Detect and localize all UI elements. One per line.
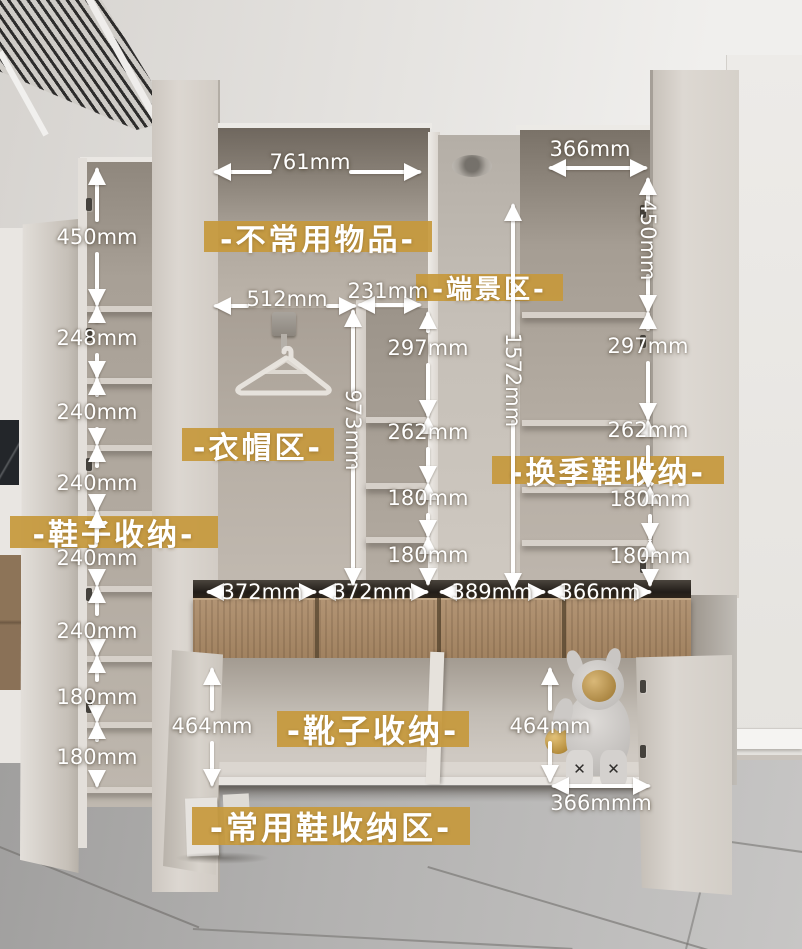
zone-label-boot-storage: -靴子收纳-: [277, 711, 469, 747]
baseboard: [726, 728, 802, 749]
dimension-arrow-231mm: 231mm: [358, 303, 421, 307]
dimension-text: 240mm: [57, 546, 138, 570]
marble-object: [0, 420, 19, 485]
dimension-arrow-389mm: 389mm: [440, 590, 545, 594]
arrowhead-icon: [88, 655, 106, 673]
arrowhead-icon: [88, 305, 106, 323]
wood-cabinet-left: [0, 555, 21, 690]
zone-label-infrequent-items: -不常用物品-: [204, 221, 432, 252]
dimension-text: 240mm: [57, 471, 138, 495]
door-hinge: [86, 198, 92, 211]
dimension-arrow-180mm: 180mm: [426, 483, 430, 537]
arrowhead-icon: [630, 159, 648, 177]
dimension-arrow-973mm: 973mm: [351, 310, 355, 585]
dimension-arrow-297mm: 297mm: [646, 312, 650, 420]
dimension-arrow-180mm: 180mm: [95, 722, 99, 787]
dimension-text: 464mm: [510, 714, 591, 738]
arrowhead-icon: [88, 510, 106, 528]
arrowhead-icon: [504, 573, 522, 591]
arrowhead-icon: [88, 770, 106, 788]
toy-leg: ✕: [600, 750, 627, 788]
arrowhead-icon: [504, 203, 522, 221]
drawer-gap: [437, 598, 441, 659]
toy-foot-mark: ✕: [607, 760, 620, 778]
shelf: [522, 312, 648, 318]
dimension-text: 240mm: [57, 619, 138, 643]
arrowhead-icon: [641, 569, 659, 587]
zone-label-daily-shoe-area: -常用鞋收纳区-: [192, 807, 470, 845]
dimension-arrow-180mm: 180mm: [95, 656, 99, 722]
toy-foot-mark: ✕: [573, 760, 586, 778]
arrowhead-icon: [344, 309, 362, 327]
dimension-arrow-180mm: 180mm: [648, 540, 652, 586]
dimension-text: 262mm: [608, 418, 689, 442]
arrowhead-icon: [548, 159, 566, 177]
arrowhead-icon: [88, 444, 106, 462]
dimension-arrow-297mm: 297mm: [426, 312, 430, 417]
dimension-arrow-240mm: 240mm: [95, 378, 99, 445]
dimension-text: 366mm: [550, 137, 631, 161]
arrowhead-icon: [541, 765, 559, 783]
zone-label-end-view-area: -端景区-: [416, 274, 563, 301]
hanger-icon: [228, 346, 338, 406]
dimension-text: 1572mm: [501, 333, 525, 427]
dimension-text: 180mm: [57, 685, 138, 709]
rail-mount: [272, 312, 296, 336]
dimension-arrow-512mm: 512mm: [214, 304, 356, 308]
dimension-text: 180mm: [610, 544, 691, 568]
dimension-arrow-180mm: 180mm: [648, 487, 652, 540]
annotated-wardrobe-photo: ✕ ✕ -不常用物品--端景区--衣帽区--换季鞋收纳--鞋子收纳--靴子收纳-…: [0, 0, 802, 949]
dimension-text: 180mm: [388, 543, 469, 567]
dimension-arrow-372mm: 372mm: [207, 590, 316, 594]
dimension-arrow-262mm: 262mm: [426, 417, 430, 483]
dimension-text: 248mm: [57, 326, 138, 350]
arrowhead-icon: [88, 167, 106, 185]
dimension-text: 973mm: [341, 390, 365, 471]
arrowhead-icon: [88, 585, 106, 603]
dimension-text: 231mm: [348, 279, 429, 303]
arrowhead-icon: [639, 311, 657, 329]
dimension-arrow-450mm: 450mm: [95, 168, 99, 306]
arrowhead-icon: [88, 377, 106, 395]
dimension-arrow-1572mm: 1572mm: [511, 204, 515, 590]
dimension-text: 464mm: [172, 714, 253, 738]
dimension-arrow-366mm: 366mm: [549, 166, 647, 170]
dimension-arrow-366mmm: 366mmm: [552, 784, 650, 788]
dimension-text: 297mm: [608, 334, 689, 358]
dimension-arrow-248mm: 248mm: [95, 306, 99, 378]
dimension-text: 262mm: [388, 420, 469, 444]
leg-shadow: [175, 852, 270, 864]
dimension-arrow-366mm: 366mm: [548, 590, 651, 594]
dimension-text: 372mm: [222, 580, 303, 604]
dimension-arrow-240mm: 240mm: [95, 511, 99, 586]
arrowhead-icon: [404, 163, 422, 181]
dimension-arrow-761mm: 761mm: [214, 170, 421, 174]
dimension-arrow-372mm: 372mm: [319, 590, 428, 594]
drawer-gap: [315, 598, 319, 659]
arrowhead-icon: [419, 311, 437, 329]
dimension-arrow-180mm: 180mm: [426, 537, 430, 585]
dimension-text: 761mm: [270, 150, 351, 174]
dimension-arrow-240mm: 240mm: [95, 586, 99, 656]
zone-label-shoe-storage: -鞋子收纳-: [10, 516, 218, 548]
dimension-text: 180mm: [610, 487, 691, 511]
zone-label-seasonal-shoe-storage: -换季鞋收纳-: [492, 456, 724, 484]
dimension-text: 512mm: [247, 287, 328, 311]
arrowhead-icon: [344, 568, 362, 586]
dimension-text: 297mm: [388, 336, 469, 360]
dimension-arrow-262mm: 262mm: [646, 420, 650, 487]
open-door-bottom-right[interactable]: [636, 655, 732, 895]
dimension-text: 366mmm: [550, 791, 651, 815]
arrowhead-icon: [88, 721, 106, 739]
arrowhead-icon: [213, 297, 231, 315]
toy-leg: ✕: [566, 750, 593, 788]
dimension-text: 450mm: [636, 200, 660, 281]
right-cabinet-interior: [520, 130, 650, 592]
arrowhead-icon: [213, 163, 231, 181]
dimension-arrow-464mm: 464mm: [210, 668, 214, 786]
dimension-text: 366mm: [560, 580, 641, 604]
dimension-text: 180mm: [57, 745, 138, 769]
arrowhead-icon: [203, 769, 221, 787]
ceiling-spotlight: [452, 155, 492, 177]
toy-visor: [582, 670, 616, 702]
dimension-arrow-464mm: 464mm: [548, 668, 552, 782]
arrowhead-icon: [639, 177, 657, 195]
arrowhead-icon: [541, 667, 559, 685]
dimension-text: 240mm: [57, 400, 138, 424]
arrowhead-icon: [419, 568, 437, 586]
arrowhead-icon: [203, 667, 221, 685]
zone-label-clothing-area: -衣帽区-: [182, 428, 334, 461]
dimension-arrow-240mm: 240mm: [95, 445, 99, 511]
dimension-text: 180mm: [388, 486, 469, 510]
dimension-text: 450mm: [57, 225, 138, 249]
dimension-arrow-450mm: 450mm: [646, 178, 650, 312]
drawer-gap: [562, 598, 566, 659]
